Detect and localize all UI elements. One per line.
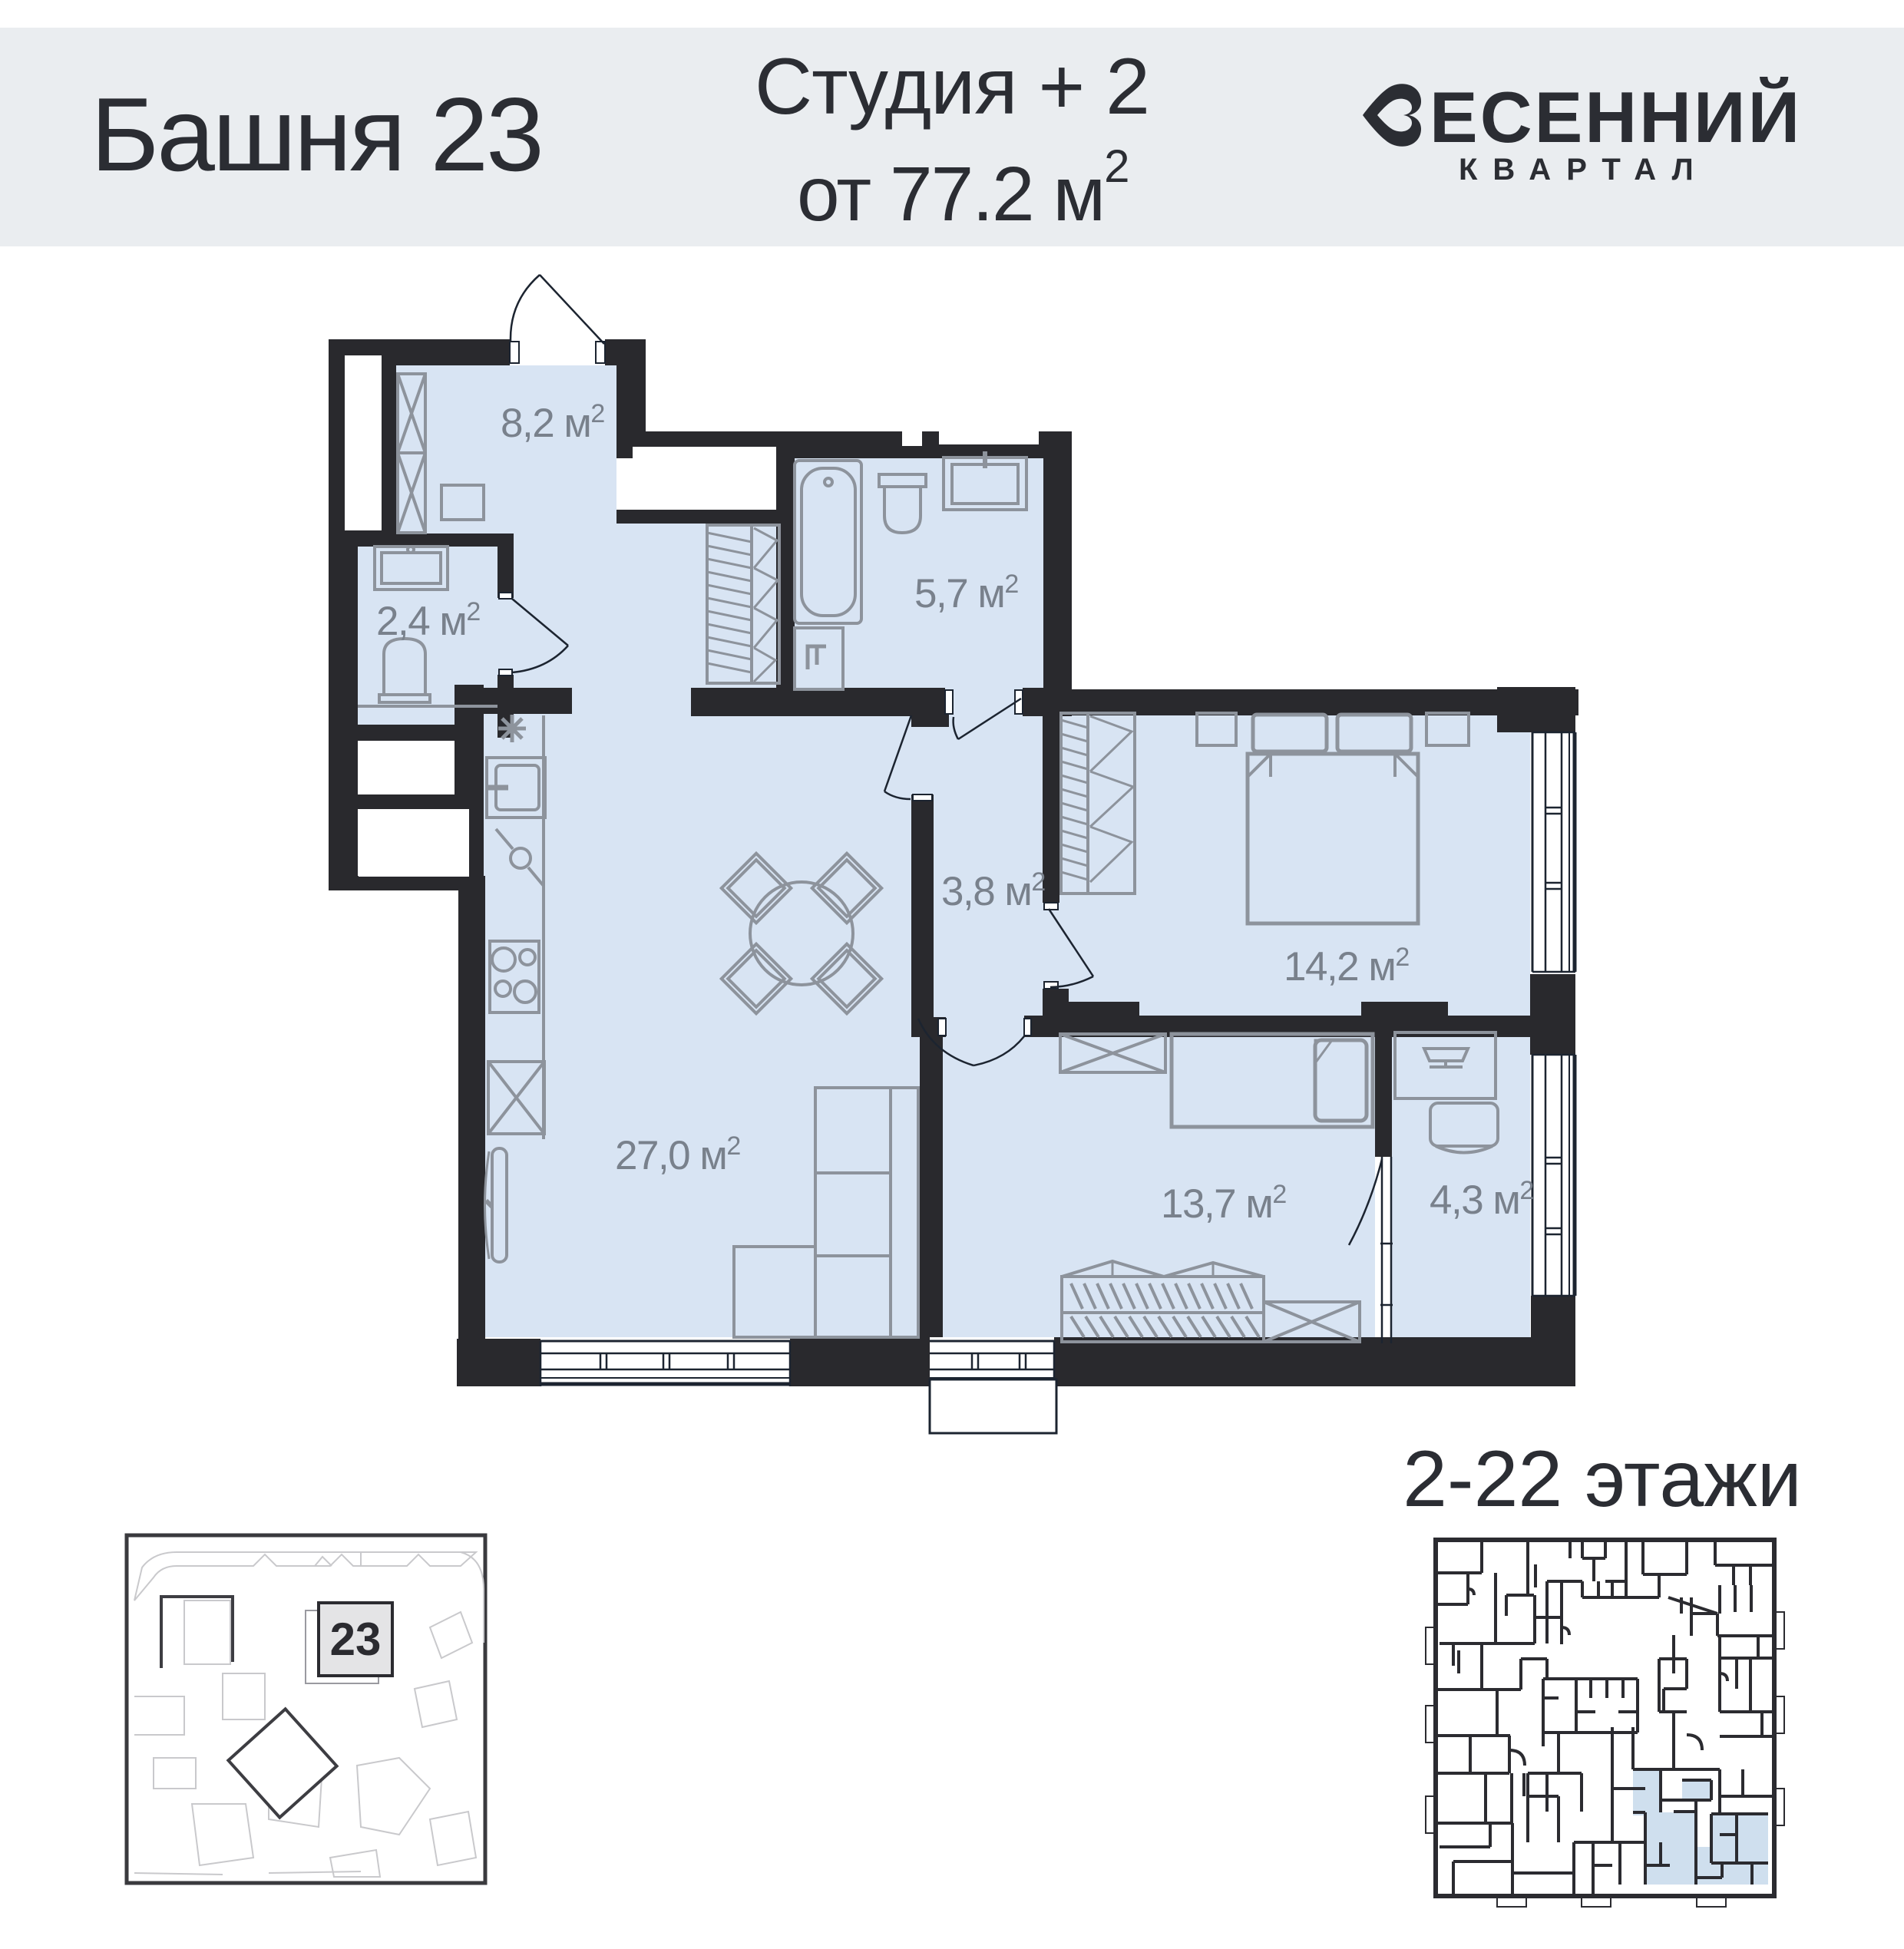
svg-text:23: 23 (330, 1614, 382, 1665)
svg-text:5,7 м2: 5,7 м2 (914, 570, 1018, 616)
svg-text:2,4 м2: 2,4 м2 (376, 597, 480, 644)
svg-text:2-22 этажи: 2-22 этажи (1403, 1435, 1802, 1524)
svg-text:14,2 м2: 14,2 м2 (1284, 943, 1409, 989)
svg-text:КВАРТАЛ: КВАРТАЛ (1459, 153, 1709, 187)
svg-text:от 77.2 м2: от 77.2 м2 (797, 140, 1129, 237)
svg-text:4,3 м2: 4,3 м2 (1430, 1176, 1533, 1223)
svg-text:Башня 23: Башня 23 (91, 76, 542, 193)
svg-text:27,0 м2: 27,0 м2 (615, 1131, 740, 1178)
svg-text:8,2 м2: 8,2 м2 (501, 399, 604, 446)
svg-text:13,7 м2: 13,7 м2 (1161, 1180, 1286, 1227)
svg-text:ЕСЕННИЙ: ЕСЕННИЙ (1430, 76, 1802, 157)
svg-text:3,8 м2: 3,8 м2 (941, 867, 1045, 914)
svg-text:Студия + 2: Студия + 2 (755, 42, 1149, 131)
